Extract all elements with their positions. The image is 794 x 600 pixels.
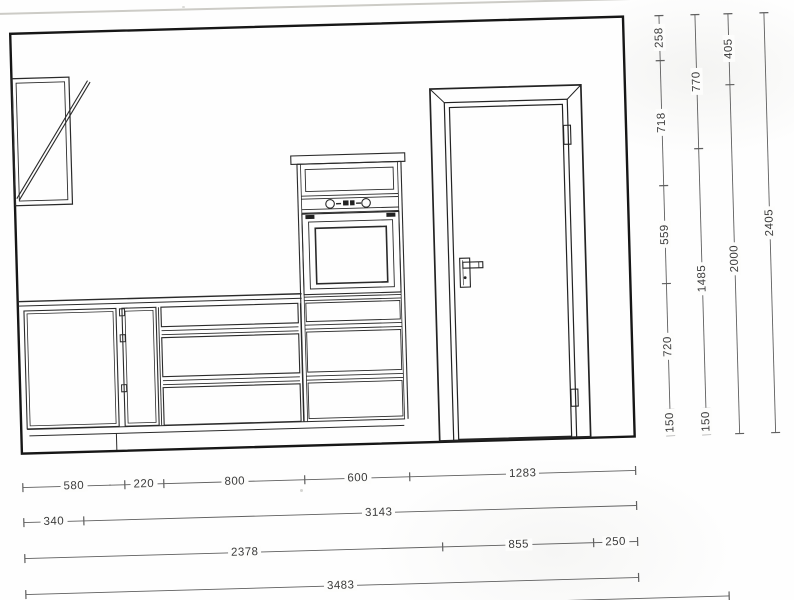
dim-label-340: 340 [40, 515, 67, 528]
dim-row-2 [24, 501, 637, 527]
dim-label-3483: 3483 [324, 579, 358, 592]
dim-label-800: 800 [221, 475, 248, 488]
dim-label-258: 258 [646, 31, 673, 44]
dim-label-2000: 2000 [718, 252, 752, 265]
dim-label-718: 718 [648, 116, 675, 129]
elevation-linework [0, 0, 794, 600]
scanned-drawing-page: 258 718 559 720 150 770 1485 150 405 200… [0, 0, 794, 600]
dim-label-1283: 1283 [506, 467, 540, 480]
dim-label-2405: 2405 [753, 216, 787, 229]
dim-label-220: 220 [130, 478, 157, 491]
dim-label-770: 770 [683, 75, 710, 88]
oven-hinge-mark [386, 213, 395, 217]
dim-column-3 [723, 14, 744, 434]
dim-label-720: 720 [655, 340, 682, 353]
dim-label-150-a: 150 [657, 416, 684, 429]
dim-chains-bottom [23, 463, 730, 600]
dim-label-580: 580 [60, 480, 87, 493]
dim-label-2378: 2378 [228, 546, 262, 559]
dim-row-5-partial [26, 591, 729, 600]
room-outline [10, 17, 634, 454]
dim-label-855: 855 [505, 538, 532, 551]
dim-label-405: 405 [715, 42, 742, 55]
dim-label-150-b: 150 [693, 415, 720, 428]
elevation-drawing: 258 718 559 720 150 770 1485 150 405 200… [0, 0, 794, 600]
oven-display-icon [350, 200, 355, 205]
oven-display-icon [343, 200, 349, 205]
dim-label-600: 600 [344, 472, 371, 485]
oven-hinge-mark [305, 215, 314, 219]
dim-label-250: 250 [602, 536, 629, 549]
dim-row-1 [23, 466, 636, 492]
dim-label-3143: 3143 [362, 506, 396, 519]
dim-row-3 [25, 537, 638, 563]
dim-label-1485: 1485 [685, 272, 719, 285]
dim-label-559: 559 [652, 228, 679, 241]
